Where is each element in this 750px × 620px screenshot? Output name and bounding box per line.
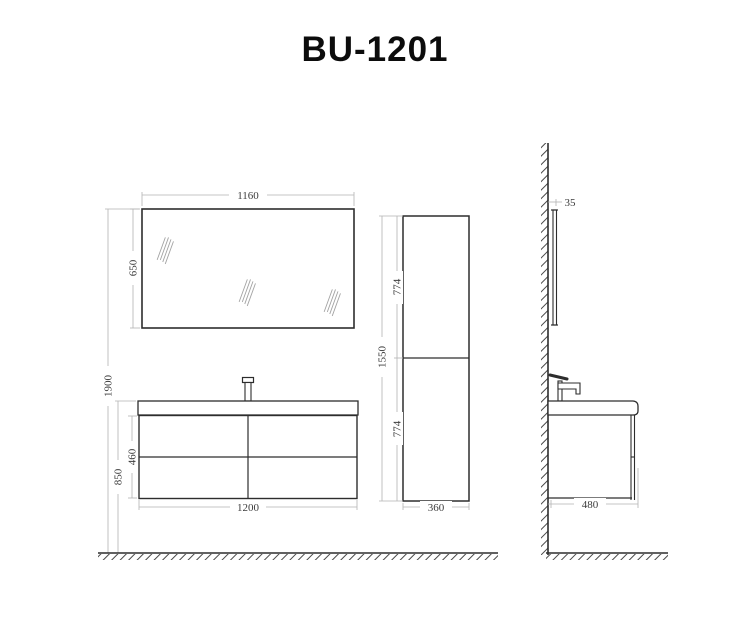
- floor-front: [98, 553, 498, 560]
- dim-mirror-height: 650: [127, 209, 140, 328]
- wall-hatch: [541, 143, 548, 555]
- svg-text:460: 460: [127, 448, 139, 465]
- svg-text:650: 650: [128, 259, 140, 276]
- technical-drawing: 1160 650 1900 850: [0, 0, 750, 620]
- svg-text:1200: 1200: [237, 502, 260, 514]
- mirror-front: [142, 209, 354, 328]
- svg-text:360: 360: [428, 502, 445, 514]
- dim-column-height: 1550: [376, 216, 403, 501]
- dim-mirror-width: 1160: [142, 189, 354, 206]
- dim-column-width: 360: [403, 501, 469, 514]
- floor-side: [546, 553, 668, 560]
- countertop-side: [548, 401, 638, 415]
- svg-text:1550: 1550: [377, 346, 389, 369]
- dim-column-lower: 774: [391, 412, 404, 445]
- drawing-sheet: BU-1201: [0, 0, 750, 620]
- dim-drawer-section-height: 460: [126, 416, 139, 498]
- svg-text:850: 850: [113, 468, 125, 485]
- svg-text:774: 774: [392, 420, 404, 437]
- svg-text:774: 774: [392, 278, 404, 295]
- faucet-front: [243, 378, 254, 402]
- faucet-side: [550, 375, 580, 401]
- svg-text:480: 480: [582, 499, 599, 511]
- dim-vanity-width: 1200: [139, 500, 357, 514]
- dim-column-upper: 774: [391, 216, 404, 501]
- dim-vanity-depth: 480: [548, 468, 638, 511]
- column-cabinet-view: 1550 774 774 360: [376, 216, 469, 514]
- dim-mirror-depth: 35: [548, 197, 576, 209]
- svg-text:35: 35: [565, 197, 577, 209]
- side-view: 35 480: [541, 143, 668, 560]
- mirror-side: [551, 210, 558, 325]
- vanity-cabinet-side: [548, 415, 635, 500]
- countertop-front: [138, 401, 358, 415]
- svg-text:1160: 1160: [237, 190, 259, 202]
- svg-text:1900: 1900: [103, 375, 115, 398]
